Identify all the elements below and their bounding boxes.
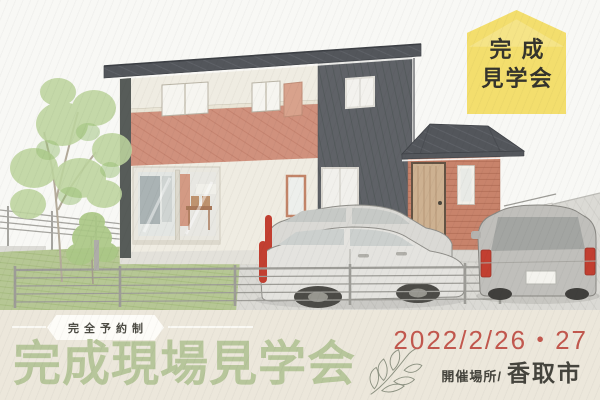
event-info: 2022/2/26・27 開催場所/ 香取市 bbox=[393, 326, 588, 385]
event-date: 2022/2/26・27 bbox=[393, 326, 588, 355]
ribbon-right-rule bbox=[168, 326, 253, 328]
living-room-window bbox=[133, 167, 220, 244]
terracotta-window bbox=[287, 176, 305, 216]
reservation-ribbon: 完全予約制 bbox=[47, 315, 164, 340]
ribbon-left-rule bbox=[12, 326, 46, 328]
event-banner[interactable]: 完成 見学会 完全予約制 完成現場見学会 2022/2/26・27 開催場所/ bbox=[0, 0, 600, 400]
reservation-ribbon-label: 完全予約制 bbox=[63, 320, 148, 336]
event-title: 完成現場見学会 bbox=[13, 341, 356, 389]
venue-name: 香取市 bbox=[507, 362, 582, 385]
gate-post bbox=[94, 240, 99, 270]
gray-car bbox=[471, 205, 596, 300]
badge-text-line2: 見学会 bbox=[479, 65, 553, 94]
event-venue: 開催場所/ 香取市 bbox=[393, 362, 588, 385]
info-band: 完全予約制 完成現場見学会 2022/2/26・27 開催場所/ 香取市 bbox=[0, 310, 600, 400]
venue-label: 開催場所/ bbox=[441, 366, 502, 385]
balcony-door bbox=[284, 82, 302, 117]
badge-text-line1: 完成 bbox=[479, 36, 553, 65]
entrance-window bbox=[459, 167, 473, 203]
